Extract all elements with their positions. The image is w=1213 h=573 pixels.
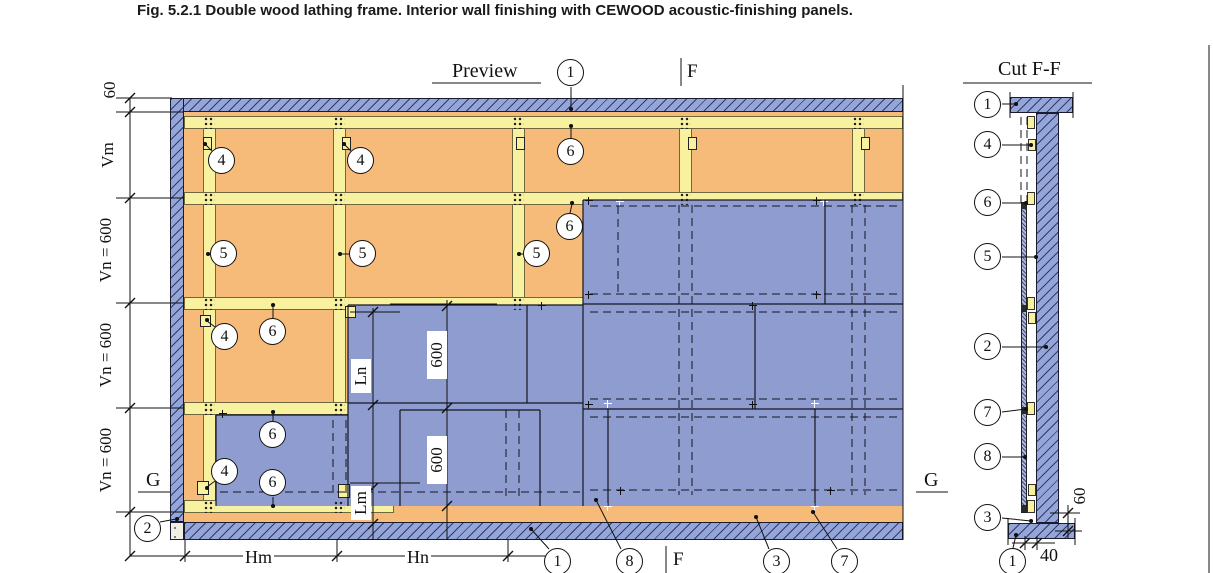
balloon-8: 8 — [616, 548, 643, 573]
balloon-7: 7 — [831, 548, 858, 573]
dim-vn600: Vn = 600 — [96, 415, 116, 505]
cut-title: Cut F-F — [998, 58, 1061, 81]
section-marker-f-bottom: F — [673, 549, 684, 571]
balloon-6: 6 — [259, 469, 286, 496]
balloon-6: 6 — [259, 318, 286, 345]
balloon-6: 6 — [556, 213, 583, 240]
grid-marker-g-right: G — [924, 469, 938, 492]
balloon-6: 6 — [557, 138, 584, 165]
balloon-4: 4 — [974, 131, 1001, 158]
balloon-4: 4 — [211, 458, 238, 485]
dim-60-cut: 60 — [1070, 474, 1090, 518]
dim-40-cut: 40 — [1040, 545, 1058, 566]
annotation-lines — [0, 0, 1213, 573]
dim-vm: Vm — [98, 133, 118, 177]
balloon-4: 4 — [208, 147, 235, 174]
section-marker-f-top: F — [687, 61, 698, 83]
balloon-4: 4 — [347, 147, 374, 174]
dim-600: 600 — [427, 436, 447, 484]
balloon-2: 2 — [974, 333, 1001, 360]
balloon-1: 1 — [557, 59, 584, 86]
figure-canvas: Fig. 5.2.1 Double wood lathing frame. In… — [0, 0, 1213, 573]
balloon-3: 3 — [763, 548, 790, 573]
balloon-3: 3 — [974, 504, 1001, 531]
balloon-1: 1 — [999, 548, 1026, 573]
preview-title: Preview — [452, 60, 518, 83]
dim-vn600: Vn = 600 — [96, 205, 116, 295]
dim-vn600: Vn = 600 — [96, 310, 116, 400]
dim-lm: Lm — [351, 486, 371, 520]
balloon-5: 5 — [974, 243, 1001, 270]
balloon-6: 6 — [259, 421, 286, 448]
balloon-8: 8 — [974, 443, 1001, 470]
balloon-1: 1 — [974, 91, 1001, 118]
dim-ln: Ln — [351, 359, 371, 393]
balloon-5: 5 — [523, 240, 550, 267]
dim-60-top: 60 — [100, 68, 120, 112]
balloon-5: 5 — [210, 240, 237, 267]
balloon-5: 5 — [349, 240, 376, 267]
grid-marker-g-left: G — [146, 469, 160, 492]
balloon-1: 1 — [544, 548, 571, 573]
dim-hn: Hn — [405, 547, 431, 568]
balloon-7: 7 — [974, 399, 1001, 426]
dim-600: 600 — [427, 331, 447, 379]
dim-hm: Hm — [243, 547, 274, 568]
balloon-2: 2 — [134, 515, 161, 542]
balloon-6: 6 — [974, 189, 1001, 216]
balloon-4: 4 — [211, 323, 238, 350]
